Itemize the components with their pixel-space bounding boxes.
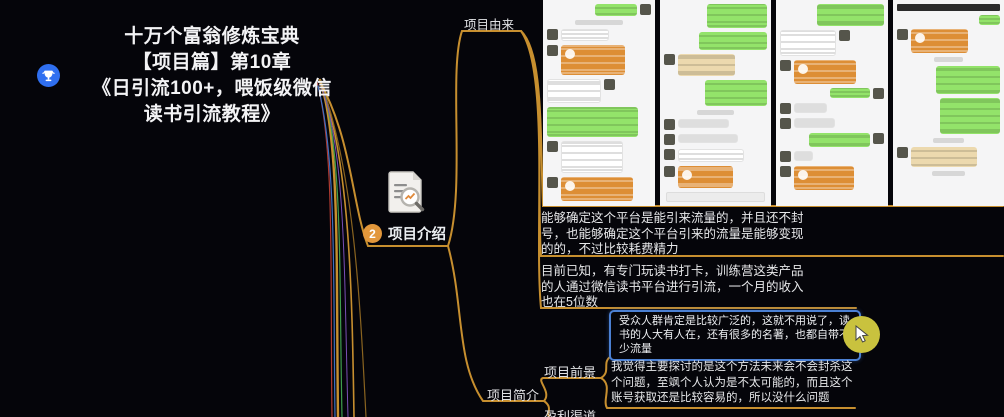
chat-row [547,79,651,103]
chat-avatar [839,30,850,41]
wechat-chat-screenshot[interactable] [543,0,1004,206]
chat-avatar [664,54,675,65]
topic-number-badge: 2 [363,224,382,243]
chat-row [897,29,1001,53]
topic-project-intro-label: 项目介绍 [388,223,446,244]
chat-bubble-green [809,133,869,147]
mouse-pointer-icon [853,325,870,344]
chat-avatar [780,166,791,177]
chat-bubble-green [979,15,1000,25]
chat-bubble-orange [678,166,734,188]
chat-row [897,15,1001,25]
chat-avatar [873,133,884,144]
chat-titlebar [897,4,1001,11]
chat-row [664,119,768,130]
chat-timestamp [575,20,623,25]
chat-row [780,60,884,84]
root-title-line4: 读书引流教程》 [76,102,348,128]
chat-row [547,20,651,25]
chat-avatar [547,141,558,152]
chat-bubble-white [794,151,813,161]
chat-bubble-orange [911,29,969,53]
chat-row [780,30,884,56]
root-title-line2: 【项目篇】第10章 [76,50,348,76]
topic-project-prospect[interactable]: 项目前景 [544,362,596,381]
chat-column [660,0,772,206]
chat-column [543,0,655,206]
chat-bubble-white [561,141,623,173]
chat-avatar [664,119,675,130]
topic-audience-selected[interactable]: 受众人群肯定是比较广泛的，这就不用说了，读书的人大有人在，还有很多的名著，也都自… [609,310,861,361]
chat-timestamp [933,138,964,143]
chat-bubble-green [707,4,767,28]
mindmap-canvas: 十万个富翁修炼宝典 【项目篇】第10章 《日引流100+，喂饭级微信 读书引流教… [0,0,1004,417]
mouse-cursor-highlight [843,316,880,353]
chat-bubble-white [794,118,835,128]
chat-avatar [897,147,908,158]
topic-profit-channel[interactable]: 盈利渠道 [544,406,596,417]
chat-row [897,147,1001,167]
chat-bubble-white [547,79,601,103]
chat-bubble-tan [678,54,736,76]
chat-row [897,4,1001,11]
root-topic[interactable]: 十万个富翁修炼宝典 【项目篇】第10章 《日引流100+，喂饭级微信 读书引流教… [76,24,348,128]
chat-input-bar [666,192,765,202]
chat-avatar [547,29,558,40]
chat-avatar [664,166,675,177]
chat-avatar [547,177,558,188]
chat-bubble-green [547,107,638,137]
chat-row [664,192,768,202]
chat-row [547,141,651,173]
chat-avatar [547,45,558,56]
chat-bubble-orange [794,166,854,190]
chat-row [547,45,651,75]
chat-avatar [664,149,675,160]
chat-bubble-green [940,98,1000,134]
chat-avatar [873,88,884,99]
chat-bubble-white [678,149,744,162]
chat-bubble-green [705,80,767,106]
chat-row [664,149,768,162]
topic-project-origin[interactable]: 项目由来 [464,14,514,33]
root-title-line3: 《日引流100+，喂饭级微信 [76,76,348,102]
chat-row [664,134,768,145]
chat-row [780,103,884,114]
chat-avatar [640,4,651,15]
chat-row [664,4,768,28]
chat-bubble-green [936,66,1000,94]
chat-row [780,133,884,147]
chat-bubble-orange [561,45,625,75]
chat-avatar [897,29,908,40]
chat-row [664,80,768,106]
chat-row [547,29,651,41]
chat-bubble-tan [911,147,977,167]
chat-row [664,166,768,188]
chat-bubble-green [817,4,883,26]
chat-bubble-green [830,88,869,98]
chat-column [776,0,888,206]
chat-row [547,4,651,16]
chat-avatar [780,60,791,71]
chat-bubble-white [561,29,609,41]
chat-bubble-orange [561,177,633,201]
chat-row [897,138,1001,143]
chat-row [664,32,768,50]
chat-bubble-green [595,4,636,16]
chat-column [893,0,1004,206]
chat-avatar [780,118,791,129]
chat-row [664,110,768,115]
chat-row [547,177,651,201]
document-search-icon [383,168,431,225]
trophy-icon [37,64,60,87]
chat-row [780,4,884,26]
chat-timestamp [697,110,734,115]
chat-bubble-white [678,119,730,128]
topic-origin-paragraph-2[interactable]: 目前已知，有专门玩读书打卡，训练营这类产品的人通过微信读书平台进行引流，一个月的… [541,264,809,311]
chat-row [780,118,884,129]
chat-row [780,151,884,162]
chat-avatar [664,134,675,145]
root-title-line1: 十万个富翁修炼宝典 [76,24,348,50]
chat-row [897,171,1001,176]
chat-row [780,166,884,190]
chat-avatar [780,103,791,114]
chat-bubble-white [780,30,836,56]
chat-row [897,66,1001,94]
chat-bubble-white [794,103,827,113]
chat-bubble-green [699,32,767,50]
chat-bubble-white [678,134,738,143]
chat-row [897,57,1001,62]
chat-row [547,107,651,137]
topic-project-brief[interactable]: 项目简介 [487,385,539,404]
chat-row [664,54,768,76]
chat-bubble-orange [794,60,856,84]
chat-avatar [604,79,615,90]
topic-prospect-paragraph[interactable]: 我觉得主要探讨的是这个方法未来会不会封杀这个问题，至飒个人认为是不太可能的，而且… [611,360,857,407]
topic-origin-paragraph-1[interactable]: 能够确定这个平台是能引来流量的，并且还不封号，也能够确定这个平台引来的流量是能够… [541,211,809,258]
chat-timestamp [932,171,965,176]
chat-row [897,98,1001,134]
chat-avatar [780,151,791,162]
chat-timestamp [934,57,963,62]
chat-row [780,88,884,99]
